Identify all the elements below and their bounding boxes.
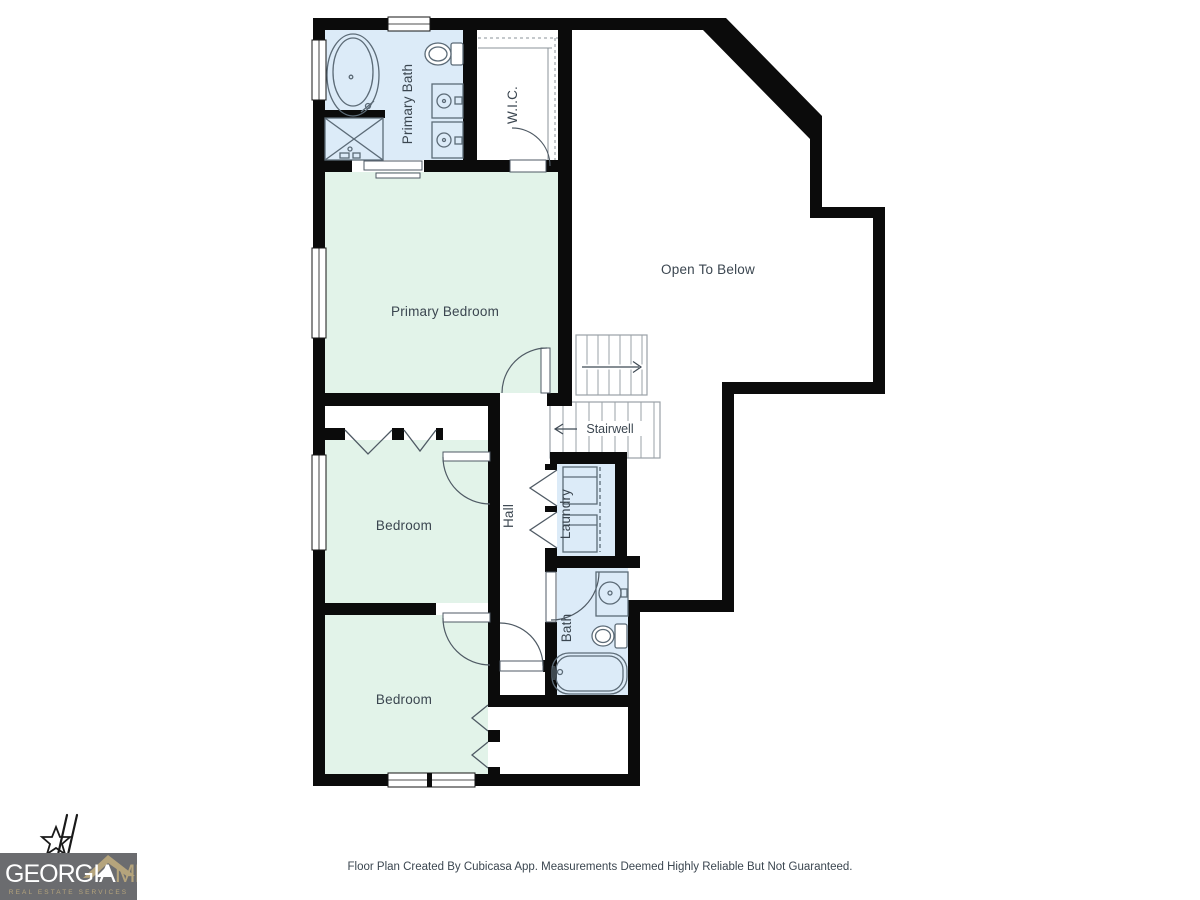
toilet-icon	[592, 624, 627, 648]
window-bottom-bedroom	[388, 773, 475, 787]
label-primary-bedroom: Primary Bedroom	[391, 304, 499, 319]
window-left-bedroom	[312, 455, 326, 550]
window-top-bath	[388, 17, 430, 31]
window-left-bath	[312, 40, 326, 100]
label-bedroom-lower: Bedroom	[376, 692, 432, 707]
label-hall: Hall	[501, 504, 516, 528]
label-stairwell: Stairwell	[586, 422, 633, 436]
label-primary-bath: Primary Bath	[400, 64, 415, 144]
label-open-to-below: Open To Below	[661, 262, 755, 277]
floor-plan-page: Primary Bath W.I.C. Open To Below Primar…	[0, 0, 1200, 900]
floor-plan-canvas: Primary Bath W.I.C. Open To Below Primar…	[0, 0, 1200, 900]
label-wic: W.I.C.	[505, 86, 520, 124]
label-laundry: Laundry	[558, 489, 573, 539]
disclaimer-text: Floor Plan Created By Cubicasa App. Meas…	[0, 861, 1200, 873]
window-left-primary-bedroom	[312, 248, 326, 338]
label-bath: Bath	[559, 614, 574, 643]
logo-tagline: REAL ESTATE SERVICES	[0, 889, 137, 896]
room-primary-bedroom	[325, 172, 558, 393]
label-bedroom-upper: Bedroom	[376, 518, 432, 533]
toilet-icon	[425, 43, 463, 65]
